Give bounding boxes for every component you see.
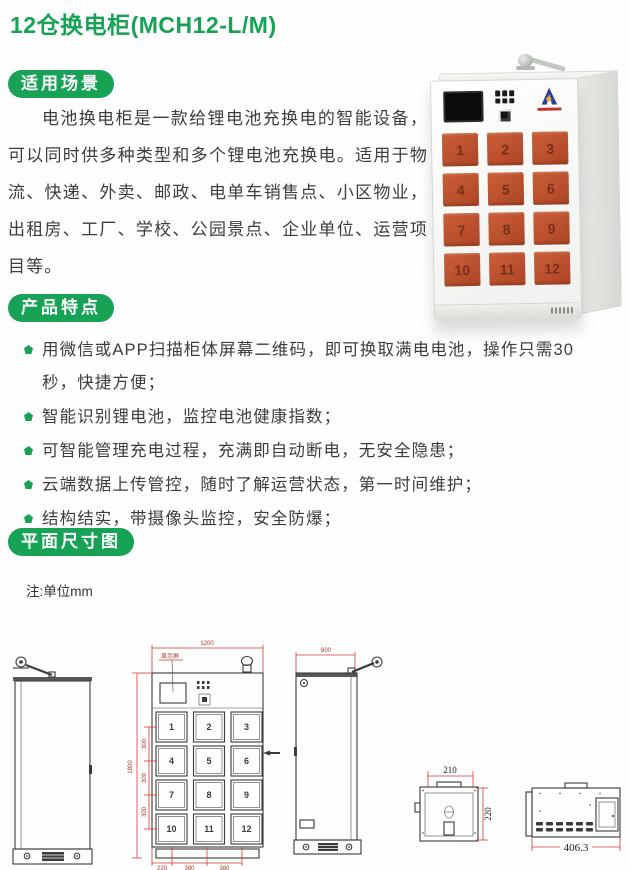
door-number: 7 <box>169 790 174 800</box>
cabinet-body: 1 2 3 4 5 6 7 8 9 10 11 12 <box>430 70 628 323</box>
pointer-arrow-icon <box>263 751 270 756</box>
battery-door: 5 <box>488 172 525 206</box>
bullet-icon <box>24 345 33 354</box>
drawing-front-view: 1200 显示屏 1 2 <box>128 641 280 870</box>
bullet-icon <box>24 480 33 489</box>
battery-door: 8 <box>488 212 525 246</box>
battery-door: 3 <box>532 131 569 165</box>
speaker-grille-icon <box>495 90 514 103</box>
battery-door: 11 <box>489 252 526 286</box>
door-number: 12 <box>241 824 251 834</box>
vent-icon <box>551 307 573 313</box>
section-badge-features: 产品特点 <box>8 294 114 322</box>
door-number: 4 <box>169 756 174 766</box>
door-number: 6 <box>244 756 249 766</box>
feature-text: 用微信或APP扫描柜体屏幕二维码，即可换取满电电池，操作只需30秒，快捷方便； <box>42 341 574 392</box>
section-badge-usage: 适用场景 <box>8 70 114 98</box>
usage-paragraph: 电池换电柜是一款给锂电池充换电的智能设备，可以同时供多种类型和多个锂电池充换电。… <box>8 100 428 285</box>
cabinet-screen <box>443 91 484 123</box>
battery-door-grid: 1 2 3 4 5 6 7 8 9 10 11 12 <box>442 131 571 286</box>
cabinet-front-face: 1 2 3 4 5 6 7 8 9 10 11 12 <box>430 78 582 321</box>
door-number: 3 <box>244 722 249 732</box>
dim-width-1200: 1200 <box>200 641 214 647</box>
product-sheet-page: 12仓换电柜(MCH12-L/M) 适用场景 电池换电柜是一款给锂电池充换电的智… <box>0 0 630 870</box>
door-number: 10 <box>166 824 176 834</box>
page-title: 12仓换电柜(MCH12-L/M) <box>10 6 277 40</box>
dim-segment-300: 300 <box>142 772 148 783</box>
dimension-drawings: 1200 显示屏 1 2 <box>0 635 630 870</box>
feature-item: 用微信或APP扫描柜体屏幕二维码，即可换取满电电池，操作只需30秒，快捷方便； <box>24 334 602 400</box>
feature-item: 可智能管理充电过程，充满即自动断电，无安全隐患； <box>24 435 602 468</box>
camera-arm-icon <box>530 57 566 72</box>
section-badge-dimensions: 平面尺寸图 <box>8 528 134 556</box>
door-number: 5 <box>206 756 211 766</box>
drawing-side-view-right: 600 <box>294 648 382 854</box>
door-number: 11 <box>204 824 214 834</box>
feature-item: 云端数据上传管控，随时了解运营状态，第一时间维护； <box>24 469 602 502</box>
dim-slot-406: 406.3 <box>564 842 589 854</box>
battery-door: 10 <box>444 253 481 287</box>
battery-door: 7 <box>443 213 480 247</box>
brand-logo-icon <box>533 87 565 115</box>
drawing-slot-side-view: 406.3 <box>526 783 620 854</box>
battery-door: 2 <box>487 132 524 166</box>
screen-callout-label: 显示屏 <box>161 653 179 660</box>
feature-text: 结构结实，带摄像头监控，安全防爆； <box>42 510 341 528</box>
qr-code-icon <box>498 109 510 121</box>
feature-text: 可智能管理充电过程，充满即自动断电，无安全隐患； <box>42 442 464 460</box>
cabinet-base <box>435 302 581 320</box>
dim-slot-220: 220 <box>483 807 493 821</box>
battery-door: 1 <box>442 133 479 167</box>
dim-segment-300: 300 <box>142 738 148 749</box>
door-number: 8 <box>206 790 211 800</box>
door-number: 9 <box>244 790 249 800</box>
feature-list: 用微信或APP扫描柜体屏幕二维码，即可换取满电电池，操作只需30秒，快捷方便； … <box>24 334 602 537</box>
feature-text: 云端数据上传管控，随时了解运营状态，第一时间维护； <box>42 476 482 494</box>
unit-note: 注:单位mm <box>26 580 93 600</box>
dim-segment-300: 300 <box>142 806 148 817</box>
dim-bottom-380: 380 <box>219 866 230 870</box>
dim-bottom-220: 220 <box>157 866 168 870</box>
bullet-icon <box>24 412 33 421</box>
cabinet-side-face <box>577 70 622 314</box>
product-photo: 1 2 3 4 5 6 7 8 9 10 11 12 <box>432 58 626 324</box>
camera-icon <box>242 657 253 666</box>
drawing-slot-top-view: 210 220 <box>415 765 493 841</box>
dim-depth-600: 600 <box>321 648 332 654</box>
battery-door: 6 <box>533 171 570 205</box>
feature-text: 智能识别锂电池，监控电池健康指数； <box>42 408 341 426</box>
battery-door: 12 <box>534 251 571 285</box>
dim-slot-210: 210 <box>443 765 457 775</box>
feature-item: 智能识别锂电池，监控电池健康指数； <box>24 401 602 434</box>
door-number: 1 <box>169 722 174 732</box>
battery-door: 4 <box>443 173 480 207</box>
door-number: 2 <box>206 722 211 732</box>
camera-icon <box>518 54 533 67</box>
drawing-side-view-left <box>13 657 92 864</box>
dim-height-1800: 1800 <box>128 760 134 774</box>
dim-bottom-380: 380 <box>184 866 195 870</box>
bullet-icon <box>24 446 33 455</box>
battery-door: 9 <box>533 211 570 245</box>
bullet-icon <box>24 514 33 523</box>
